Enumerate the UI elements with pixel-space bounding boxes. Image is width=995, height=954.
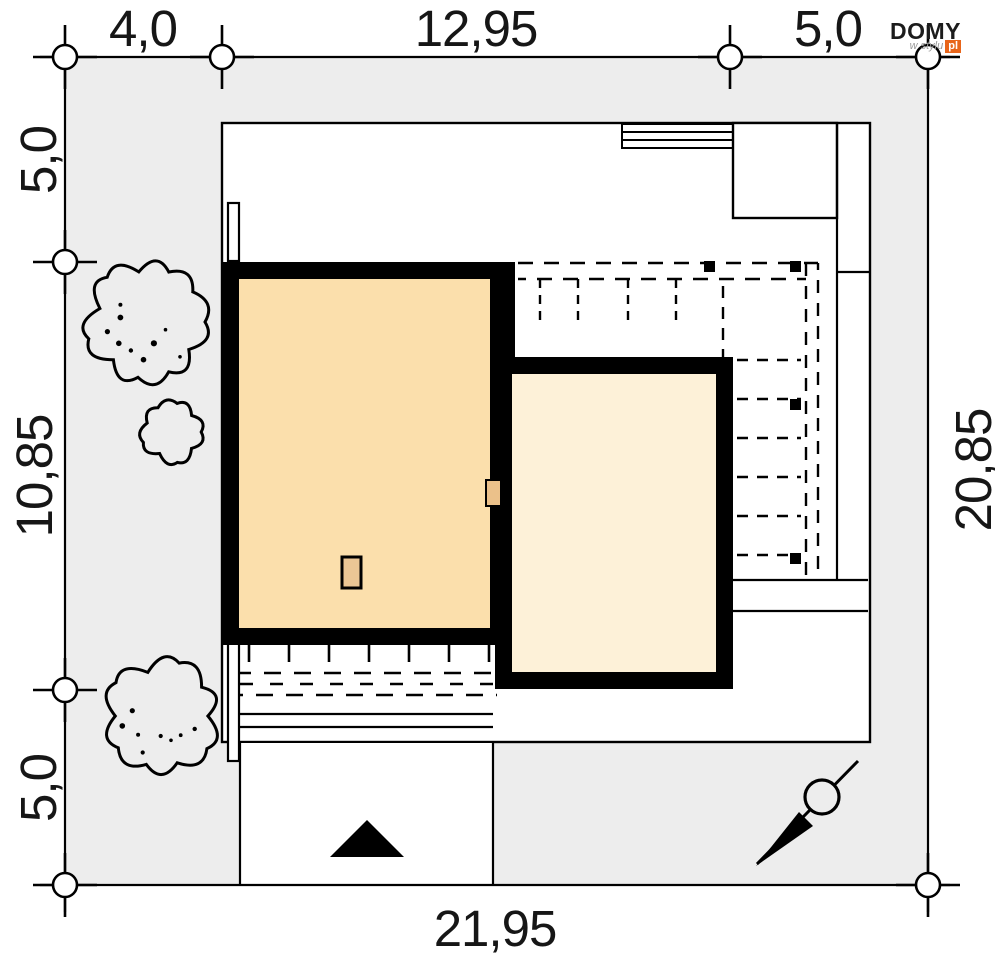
tree-texture-dot bbox=[164, 328, 168, 332]
dim-top-left: 4,0 bbox=[109, 0, 177, 57]
tree-icon bbox=[106, 657, 217, 775]
tree-texture-dot bbox=[179, 733, 183, 737]
tree-texture-dot bbox=[136, 733, 140, 737]
dim-left-top: 5,0 bbox=[10, 126, 67, 194]
domy-w-stylu-logo: DOMY w stylu pl bbox=[883, 20, 961, 53]
dim-top-middle: 12,95 bbox=[415, 0, 538, 57]
tree-texture-dot bbox=[141, 357, 147, 363]
tree-texture-dot bbox=[193, 727, 197, 731]
annex-building bbox=[495, 357, 733, 689]
tree-texture-dot bbox=[129, 348, 133, 352]
tree-texture-dot bbox=[105, 329, 110, 334]
chimney-marker bbox=[342, 557, 361, 588]
tree-texture-dot bbox=[118, 315, 124, 321]
site-plan: 4,0 12,95 5,0 5,0 10,85 5,0 20,85 21,95 … bbox=[0, 0, 995, 954]
door-marker bbox=[486, 480, 501, 506]
tree-texture-dot bbox=[169, 739, 173, 743]
dim-left-bottom: 5,0 bbox=[10, 754, 67, 822]
logo-tld-badge: pl bbox=[945, 40, 961, 53]
dim-left-middle: 10,85 bbox=[6, 415, 63, 538]
dim-bottom: 21,95 bbox=[434, 900, 557, 954]
tree-texture-dot bbox=[120, 723, 126, 729]
tree-texture-dot bbox=[118, 303, 122, 307]
dim-right: 20,85 bbox=[945, 409, 995, 532]
tree-texture-dot bbox=[151, 340, 157, 346]
tree-texture-dot bbox=[159, 734, 163, 738]
top-right-annex-outline bbox=[733, 123, 837, 218]
driveway bbox=[240, 743, 493, 885]
tree-texture-dot bbox=[130, 708, 135, 713]
dim-top-right: 5,0 bbox=[794, 0, 862, 57]
main-house-interior bbox=[239, 279, 490, 628]
top-steps-hatch bbox=[622, 124, 733, 148]
garden-wall-strip bbox=[228, 640, 239, 761]
site-plan-drawing: 4,0 12,95 5,0 5,0 10,85 5,0 20,85 21,95 bbox=[0, 0, 995, 954]
tree-texture-dot bbox=[141, 750, 145, 754]
annex-interior bbox=[512, 374, 716, 672]
main-house bbox=[222, 262, 515, 645]
tree-texture-dot bbox=[178, 355, 182, 359]
logo-tagline: w stylu bbox=[910, 41, 944, 52]
wall-stub bbox=[228, 203, 239, 261]
tree-texture-dot bbox=[116, 341, 122, 347]
